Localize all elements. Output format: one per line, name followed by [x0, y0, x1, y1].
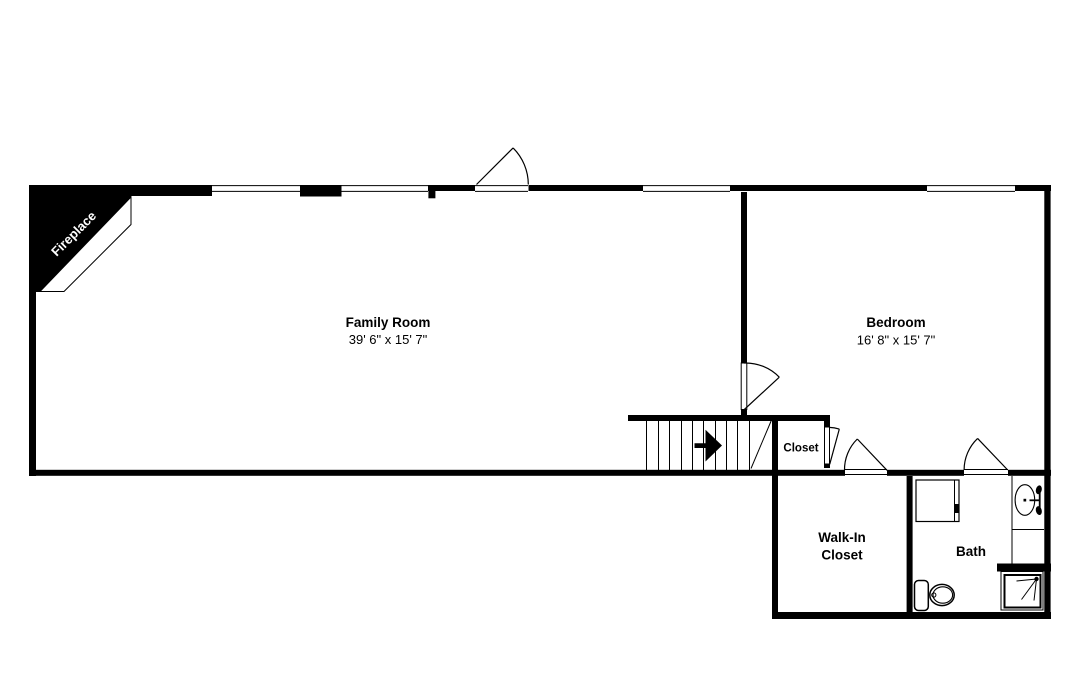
svg-text:Closet: Closet [821, 548, 863, 563]
svg-text:Family Room: Family Room [346, 315, 431, 330]
svg-text:Walk-In: Walk-In [818, 530, 866, 545]
svg-text:16' 8" x 15' 7": 16' 8" x 15' 7" [857, 333, 936, 348]
svg-text:Bedroom: Bedroom [866, 315, 925, 330]
svg-text:Bath: Bath [956, 544, 986, 559]
svg-text:Closet: Closet [783, 443, 818, 455]
svg-text:39' 6" x 15' 7": 39' 6" x 15' 7" [349, 332, 428, 347]
